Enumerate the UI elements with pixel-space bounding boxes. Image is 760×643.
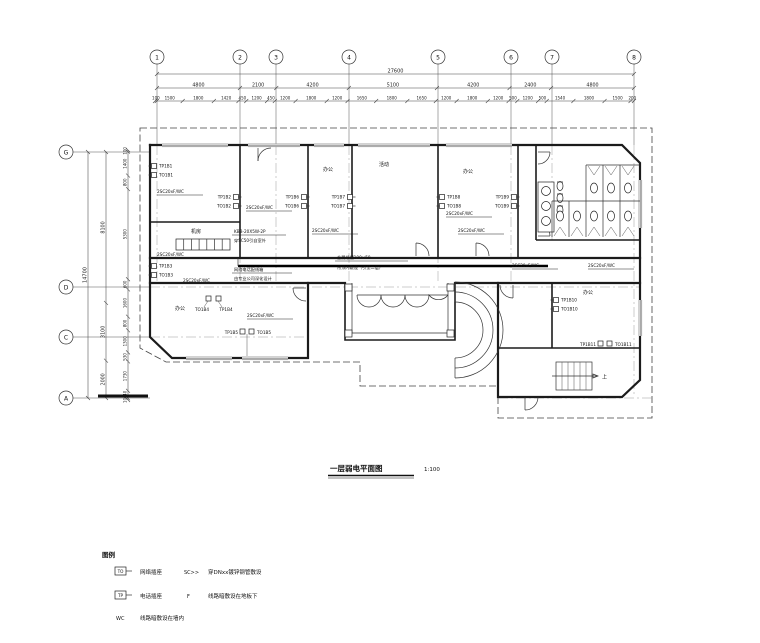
legend-item-to: TO 网络插座 xyxy=(115,567,163,576)
svg-text:TO1B3: TO1B3 xyxy=(158,273,173,278)
svg-text:线路暗敷设在墙内: 线路暗敷设在墙内 xyxy=(140,614,184,622)
title-text: 一层弱电平面图 xyxy=(330,463,383,473)
svg-text:1200: 1200 xyxy=(493,96,504,101)
svg-text:7: 7 xyxy=(550,55,554,62)
svg-text:3: 3 xyxy=(274,55,278,62)
svg-text:1650: 1650 xyxy=(417,96,428,101)
svg-text:1420: 1420 xyxy=(221,96,232,101)
window-bottom-1 xyxy=(186,357,232,360)
svg-text:D: D xyxy=(64,285,69,292)
svg-text:TP1B1: TP1B1 xyxy=(158,164,173,169)
svg-text:3100: 3100 xyxy=(101,326,107,338)
svg-text:A: A xyxy=(64,396,69,403)
svg-text:1600: 1600 xyxy=(123,298,128,309)
room-office3: 办公 xyxy=(323,166,333,173)
window-top-1 xyxy=(162,144,228,147)
door-wing-exterior xyxy=(525,397,538,410)
grid-left: G D C A xyxy=(59,145,150,405)
svg-text:2SC20xF/WC: 2SC20xF/WC xyxy=(312,228,339,233)
svg-text:2SC20xF/WC: 2SC20xF/WC xyxy=(458,228,485,233)
site-boundary xyxy=(140,128,652,418)
grid-bubble-4: 4 xyxy=(342,50,356,145)
stair-up-label: 上 xyxy=(602,374,607,381)
svg-text:1300: 1300 xyxy=(123,336,128,347)
svg-text:2SC20xF/WC: 2SC20xF/WC xyxy=(183,278,210,283)
svg-text:G: G xyxy=(64,150,69,157)
svg-text:TP1B5: TP1B5 xyxy=(224,330,239,335)
svg-text:TP1B8: TP1B8 xyxy=(446,195,461,200)
legend-header: 图例 xyxy=(102,550,116,559)
outlet-pair-10: TP1B10TO1B10 xyxy=(551,298,579,312)
room-equip: 机房 xyxy=(191,228,201,235)
legend-item-sc: SC>> 穿DNxx镀锌钢管敷设 xyxy=(184,568,262,576)
floor-box-pair-4: TO1B4 TP1B4 xyxy=(194,296,233,312)
svg-text:1400: 1400 xyxy=(123,158,128,169)
dim-top-total: 27600 xyxy=(155,69,636,77)
svg-text:1800: 1800 xyxy=(467,96,478,101)
note-kbb-line2: 穿SC50引自室外 xyxy=(234,237,267,244)
note-box-line2: 由专业公司深化设计 xyxy=(234,275,272,282)
urinals xyxy=(557,182,563,215)
svg-text:500: 500 xyxy=(509,96,517,101)
svg-text:1200: 1200 xyxy=(332,96,343,101)
room-wing: 办公 xyxy=(583,289,593,296)
outlet-pair-3: TP1B3TO1B3 xyxy=(149,264,174,278)
entrance-porch xyxy=(345,283,455,340)
outlet-pair-6: TP1B6TO1B6 xyxy=(284,195,310,209)
svg-text:530: 530 xyxy=(123,353,128,361)
svg-text:C: C xyxy=(64,335,68,342)
svg-text:8: 8 xyxy=(632,55,636,62)
svg-text:5300: 5300 xyxy=(123,229,128,240)
svg-text:WC: WC xyxy=(116,616,125,622)
svg-text:1800: 1800 xyxy=(193,96,204,101)
dim-left-minor: 1001400800530060016008001300530173044010… xyxy=(123,147,131,403)
svg-text:1500: 1500 xyxy=(612,96,623,101)
legend-item-f: F 线路暗敷设在地板下 xyxy=(187,592,258,600)
grid-bubble-G: G xyxy=(59,145,150,159)
svg-text:2100: 2100 xyxy=(252,83,264,89)
svg-text:线路暗敷设在地板下: 线路暗敷设在地板下 xyxy=(208,592,258,600)
dim-top-major: 4800210042005100420024004800 xyxy=(155,83,636,91)
svg-text:TP1B10: TP1B10 xyxy=(560,298,577,303)
svg-text:1800: 1800 xyxy=(306,96,317,101)
svg-text:2: 2 xyxy=(238,55,242,62)
curved-ramp xyxy=(455,282,503,378)
svg-text:4800: 4800 xyxy=(586,83,598,89)
outlet-pair-8: TP1B8TO1B8 xyxy=(437,195,462,209)
grid-bubble-A: A xyxy=(59,391,150,405)
svg-text:TO: TO xyxy=(117,569,125,574)
svg-text:5100: 5100 xyxy=(387,83,399,89)
svg-text:100: 100 xyxy=(152,96,160,101)
dim-left-major: 810031002000 xyxy=(101,150,109,400)
svg-text:5: 5 xyxy=(436,55,440,62)
windows xyxy=(162,144,642,360)
svg-text:TO1B9: TO1B9 xyxy=(494,204,509,209)
svg-text:TP1B3: TP1B3 xyxy=(158,264,173,269)
grid-bubble-D: D xyxy=(59,280,150,294)
basin-3 xyxy=(542,217,551,226)
svg-text:TP: TP xyxy=(117,593,124,598)
title-scale: 1:100 xyxy=(424,467,440,473)
dim-top-minor: 1001500180014204501200450120018001200165… xyxy=(152,96,636,104)
svg-text:600: 600 xyxy=(123,280,128,288)
svg-text:TO1B1: TO1B1 xyxy=(158,173,173,178)
outlet-pair-9: TP1B9TO1B9 xyxy=(494,195,520,209)
plan-notes: KBB-20X5W-2P 穿SC50引自室外 网络电话配线箱 由专业公司深化设计… xyxy=(232,229,408,282)
svg-text:TO1B8: TO1B8 xyxy=(446,204,461,209)
window-bottom-2 xyxy=(242,357,288,360)
svg-text:TO1B7: TO1B7 xyxy=(330,204,345,209)
svg-text:1540: 1540 xyxy=(555,96,566,101)
svg-text:电话插座: 电话插座 xyxy=(140,592,163,600)
svg-text:2SC20xF/WC: 2SC20xF/WC xyxy=(446,211,473,216)
svg-text:800: 800 xyxy=(123,319,128,327)
svg-text:2SC20xF/WC: 2SC20xF/WC xyxy=(246,205,273,210)
window-east-2 xyxy=(639,300,642,336)
svg-text:6: 6 xyxy=(509,55,513,62)
svg-text:网络插座: 网络插座 xyxy=(140,568,163,576)
door-office5 xyxy=(476,243,489,256)
window-top-3 xyxy=(314,144,344,147)
room-office5: 办公 xyxy=(463,168,473,175)
svg-text:1650: 1650 xyxy=(357,96,368,101)
svg-text:2SC20xF/WC: 2SC20xF/WC xyxy=(512,263,539,268)
window-top-2 xyxy=(248,144,300,147)
svg-text:500: 500 xyxy=(539,96,547,101)
basin-2 xyxy=(542,202,551,211)
svg-text:450: 450 xyxy=(239,96,247,101)
svg-text:TP1B2: TP1B2 xyxy=(217,195,232,200)
svg-text:TO1B11: TO1B11 xyxy=(614,342,632,347)
note-trunk-line2: 吊顶内敷设（引至二层） xyxy=(337,264,383,271)
door-activity xyxy=(416,243,429,256)
svg-text:TO1B4: TO1B4 xyxy=(194,307,209,312)
legend-item-wc: WC 线路暗敷设在墙内 xyxy=(116,614,184,622)
svg-text:800: 800 xyxy=(123,178,128,186)
svg-text:2400: 2400 xyxy=(524,83,536,89)
svg-text:1200: 1200 xyxy=(280,96,291,101)
svg-text:1500: 1500 xyxy=(165,96,176,101)
svg-text:1730: 1730 xyxy=(123,371,128,382)
svg-text:1200: 1200 xyxy=(252,96,263,101)
svg-text:TO1B2: TO1B2 xyxy=(216,204,231,209)
svg-text:TO1B6: TO1B6 xyxy=(284,204,299,209)
svg-text:穿DNxx镀锌钢管敷设: 穿DNxx镀锌钢管敷设 xyxy=(208,568,262,576)
wall-pair-5: TP1B5 TO1B5 xyxy=(224,329,272,356)
svg-text:2SC20xF/WC: 2SC20xF/WC xyxy=(588,263,615,268)
svg-text:1: 1 xyxy=(155,55,159,62)
outlet-pair-2: TP1B2TO1B2 xyxy=(216,195,242,209)
svg-text:1800: 1800 xyxy=(584,96,595,101)
svg-text:4800: 4800 xyxy=(192,83,204,89)
svg-text:F: F xyxy=(187,594,190,600)
outlet-pair-1: TP1B1TO1B1 xyxy=(149,164,174,178)
room-lower-left: 办公 xyxy=(175,305,185,312)
door-toilet-1 xyxy=(538,152,550,164)
legend-item-tp: TP 电话插座 xyxy=(115,591,163,600)
svg-text:4: 4 xyxy=(347,55,351,62)
note-box-line1: 网络电话配线箱 xyxy=(234,266,263,273)
doors xyxy=(258,148,550,410)
svg-text:SC>>: SC>> xyxy=(184,570,199,576)
svg-text:14700: 14700 xyxy=(83,267,89,283)
svg-text:TP1B7: TP1B7 xyxy=(331,195,346,200)
svg-text:TP1B11: TP1B11 xyxy=(579,342,596,347)
wing-stair: 上 xyxy=(552,362,607,390)
svg-text:4200: 4200 xyxy=(467,83,479,89)
window-top-4 xyxy=(358,144,430,147)
dim-left-total: 14700 xyxy=(83,150,91,400)
svg-text:2SC20xF/WC: 2SC20xF/WC xyxy=(247,313,274,318)
window-east-1 xyxy=(639,180,642,228)
svg-text:8100: 8100 xyxy=(101,221,107,233)
note-kbb-line1: KBB-20X5W-2P xyxy=(234,229,266,234)
room-activity: 活动 xyxy=(379,161,389,168)
svg-text:450: 450 xyxy=(267,96,275,101)
svg-text:TP1B9: TP1B9 xyxy=(495,195,510,200)
svg-text:TO1B10: TO1B10 xyxy=(560,307,578,312)
svg-text:1200: 1200 xyxy=(441,96,452,101)
drawing-sheet: 1 2 3 4 5 6 7 8 G D C A 27600 4800210042… xyxy=(0,0,760,643)
room-labels: 机房 办公 活动 办公 办公 办公 xyxy=(175,161,593,312)
svg-text:TO1B5: TO1B5 xyxy=(256,330,271,335)
wall-pair-11: TP1B11 TO1B11 xyxy=(579,341,632,347)
svg-text:2SC20xF/WC: 2SC20xF/WC xyxy=(157,252,184,257)
door-lower-left xyxy=(293,288,306,301)
svg-text:TP1B6: TP1B6 xyxy=(285,195,300,200)
svg-text:1800: 1800 xyxy=(387,96,398,101)
svg-text:2000: 2000 xyxy=(101,373,107,385)
svg-text:4200: 4200 xyxy=(306,83,318,89)
svg-text:2SC20xF/WC: 2SC20xF/WC xyxy=(157,189,184,194)
window-top-5 xyxy=(446,144,512,147)
basin-1 xyxy=(542,187,551,196)
drawing-title: 一层弱电平面图 1:100 xyxy=(328,463,440,478)
toilet-block xyxy=(538,165,640,237)
cabinet-row xyxy=(176,239,230,250)
svg-text:27600: 27600 xyxy=(388,69,404,75)
door-room2-top xyxy=(258,148,271,161)
legend: 图例 TO 网络插座 TP 电话插座 WC 线路暗敷设在墙内 SC>> 穿DNx… xyxy=(102,550,262,622)
floor-plan-svg: 1 2 3 4 5 6 7 8 G D C A 27600 4800210042… xyxy=(0,0,760,643)
svg-text:1200: 1200 xyxy=(523,96,534,101)
svg-text:TP1B4: TP1B4 xyxy=(218,307,233,312)
note-trunk-line1: 金属线槽100×50 xyxy=(337,254,371,261)
